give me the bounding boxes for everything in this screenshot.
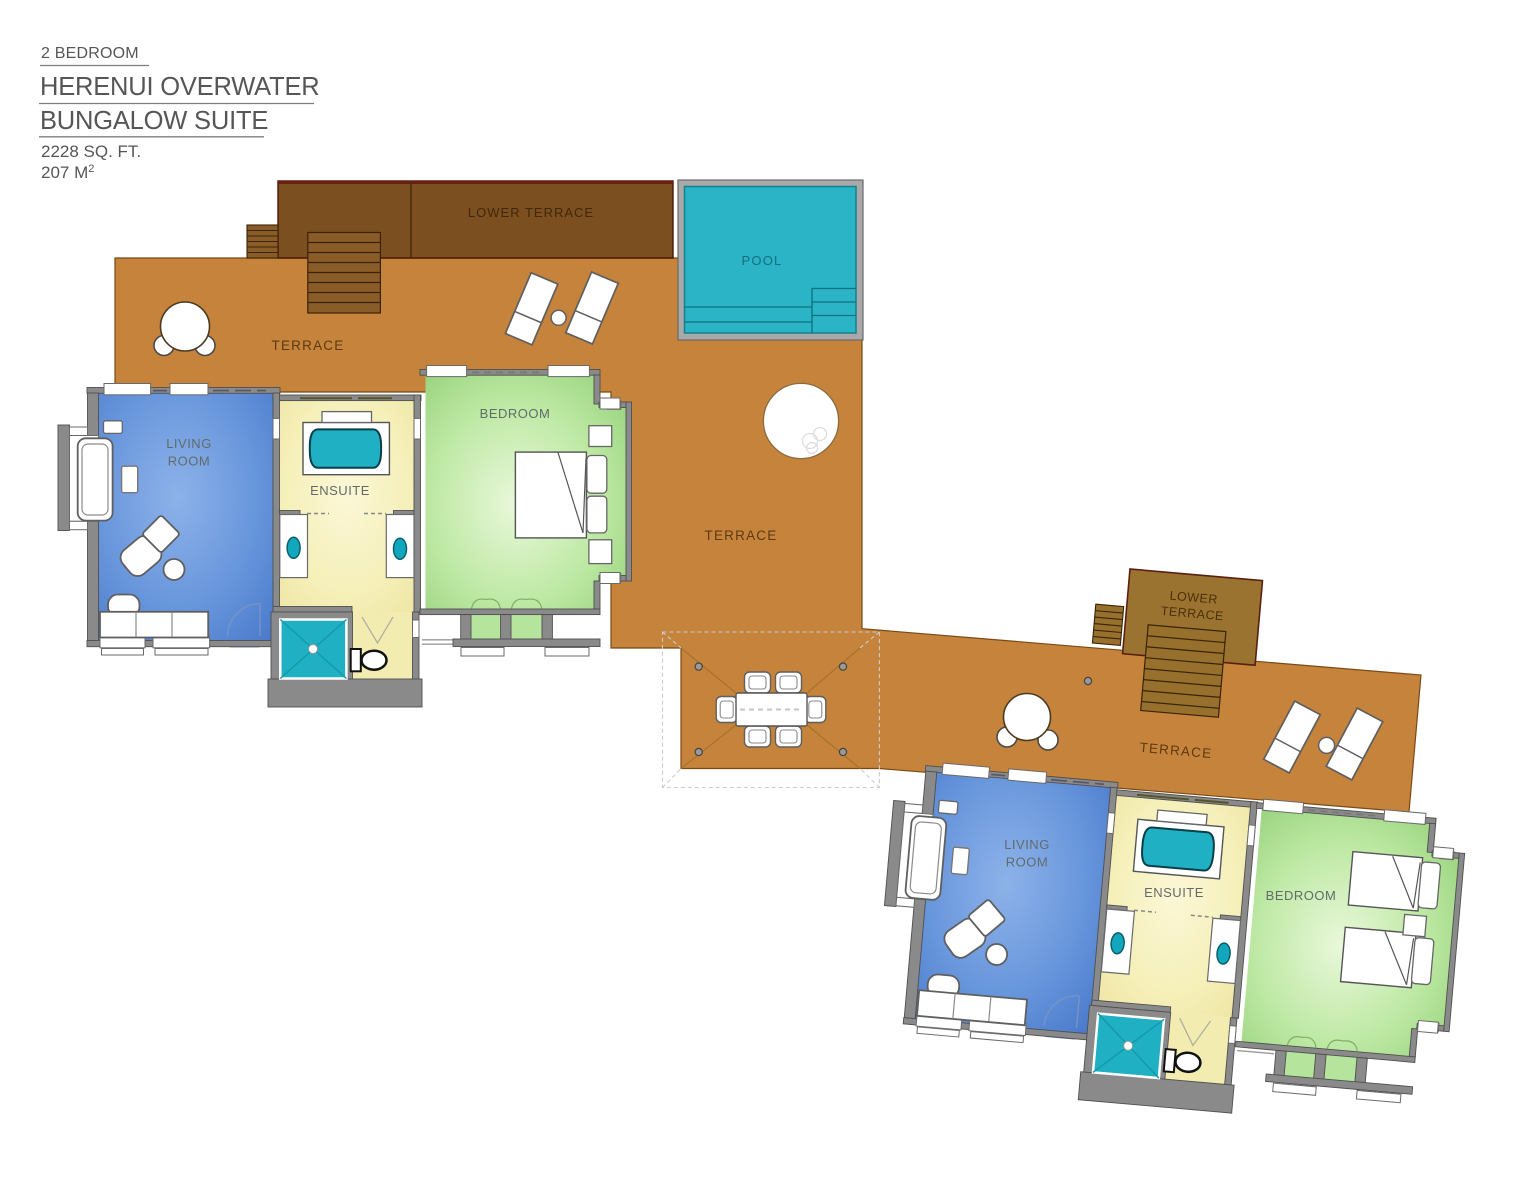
svg-text:2228 SQ. FT.: 2228 SQ. FT. xyxy=(41,142,141,161)
svg-text:ROOM: ROOM xyxy=(1006,855,1048,870)
svg-text:2 BEDROOM: 2 BEDROOM xyxy=(41,45,139,62)
svg-text:LOWER TERRACE: LOWER TERRACE xyxy=(468,205,594,220)
svg-text:ENSUITE: ENSUITE xyxy=(1144,885,1204,900)
svg-text:BEDROOM: BEDROOM xyxy=(480,406,551,421)
svg-text:BEDROOM: BEDROOM xyxy=(1266,888,1337,903)
svg-text:TERRACE: TERRACE xyxy=(705,528,778,543)
svg-text:ROOM: ROOM xyxy=(168,454,210,469)
svg-text:TERRACE: TERRACE xyxy=(272,338,345,353)
svg-text:207 M2: 207 M2 xyxy=(41,163,94,182)
svg-text:LIVING: LIVING xyxy=(1004,837,1050,852)
svg-text:ENSUITE: ENSUITE xyxy=(310,483,370,498)
svg-text:HERENUI OVERWATER: HERENUI OVERWATER xyxy=(40,73,320,101)
svg-text:POOL: POOL xyxy=(742,253,783,268)
svg-text:LIVING: LIVING xyxy=(166,436,212,451)
svg-text:BUNGALOW SUITE: BUNGALOW SUITE xyxy=(40,107,268,135)
